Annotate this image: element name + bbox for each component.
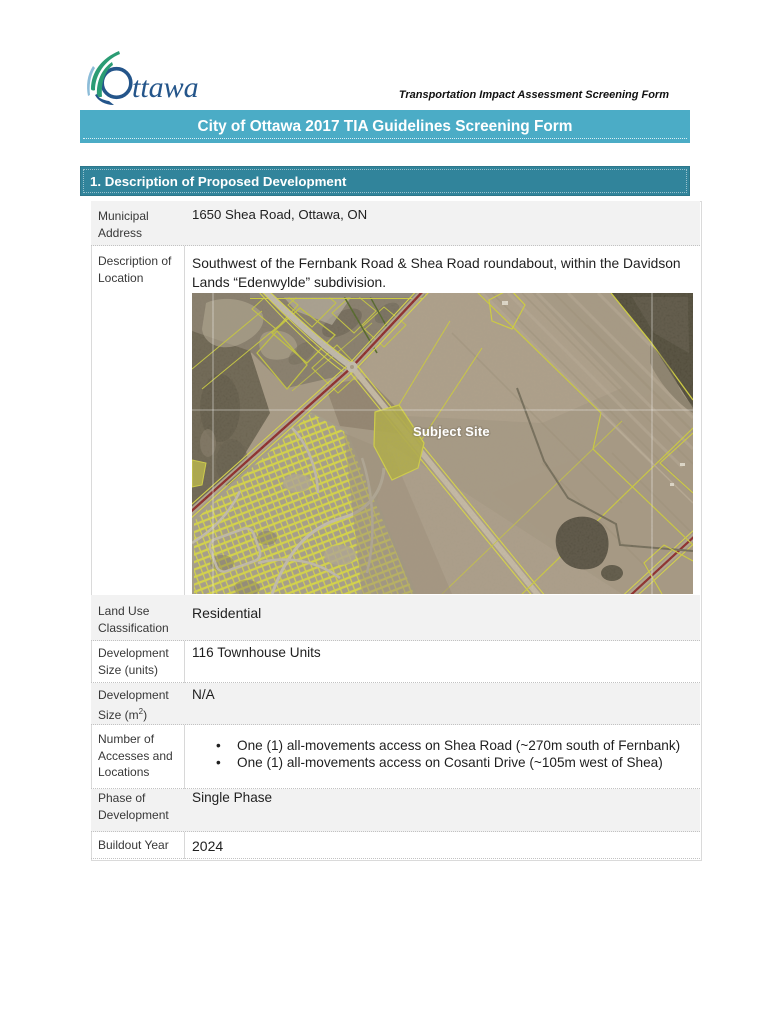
svg-text:ttawa: ttawa [132,71,199,104]
svg-text:Subject Site: Subject Site [413,424,490,439]
